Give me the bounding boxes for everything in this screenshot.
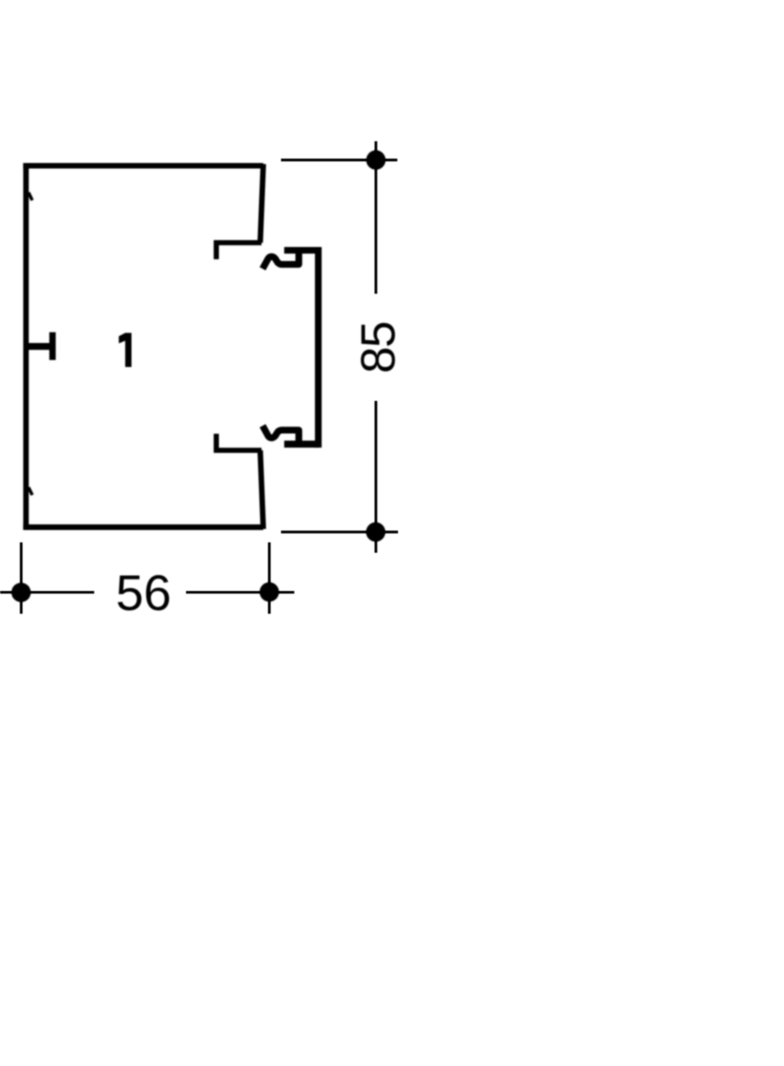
svg-text:85: 85 — [351, 322, 405, 374]
svg-text:56: 56 — [116, 565, 172, 621]
